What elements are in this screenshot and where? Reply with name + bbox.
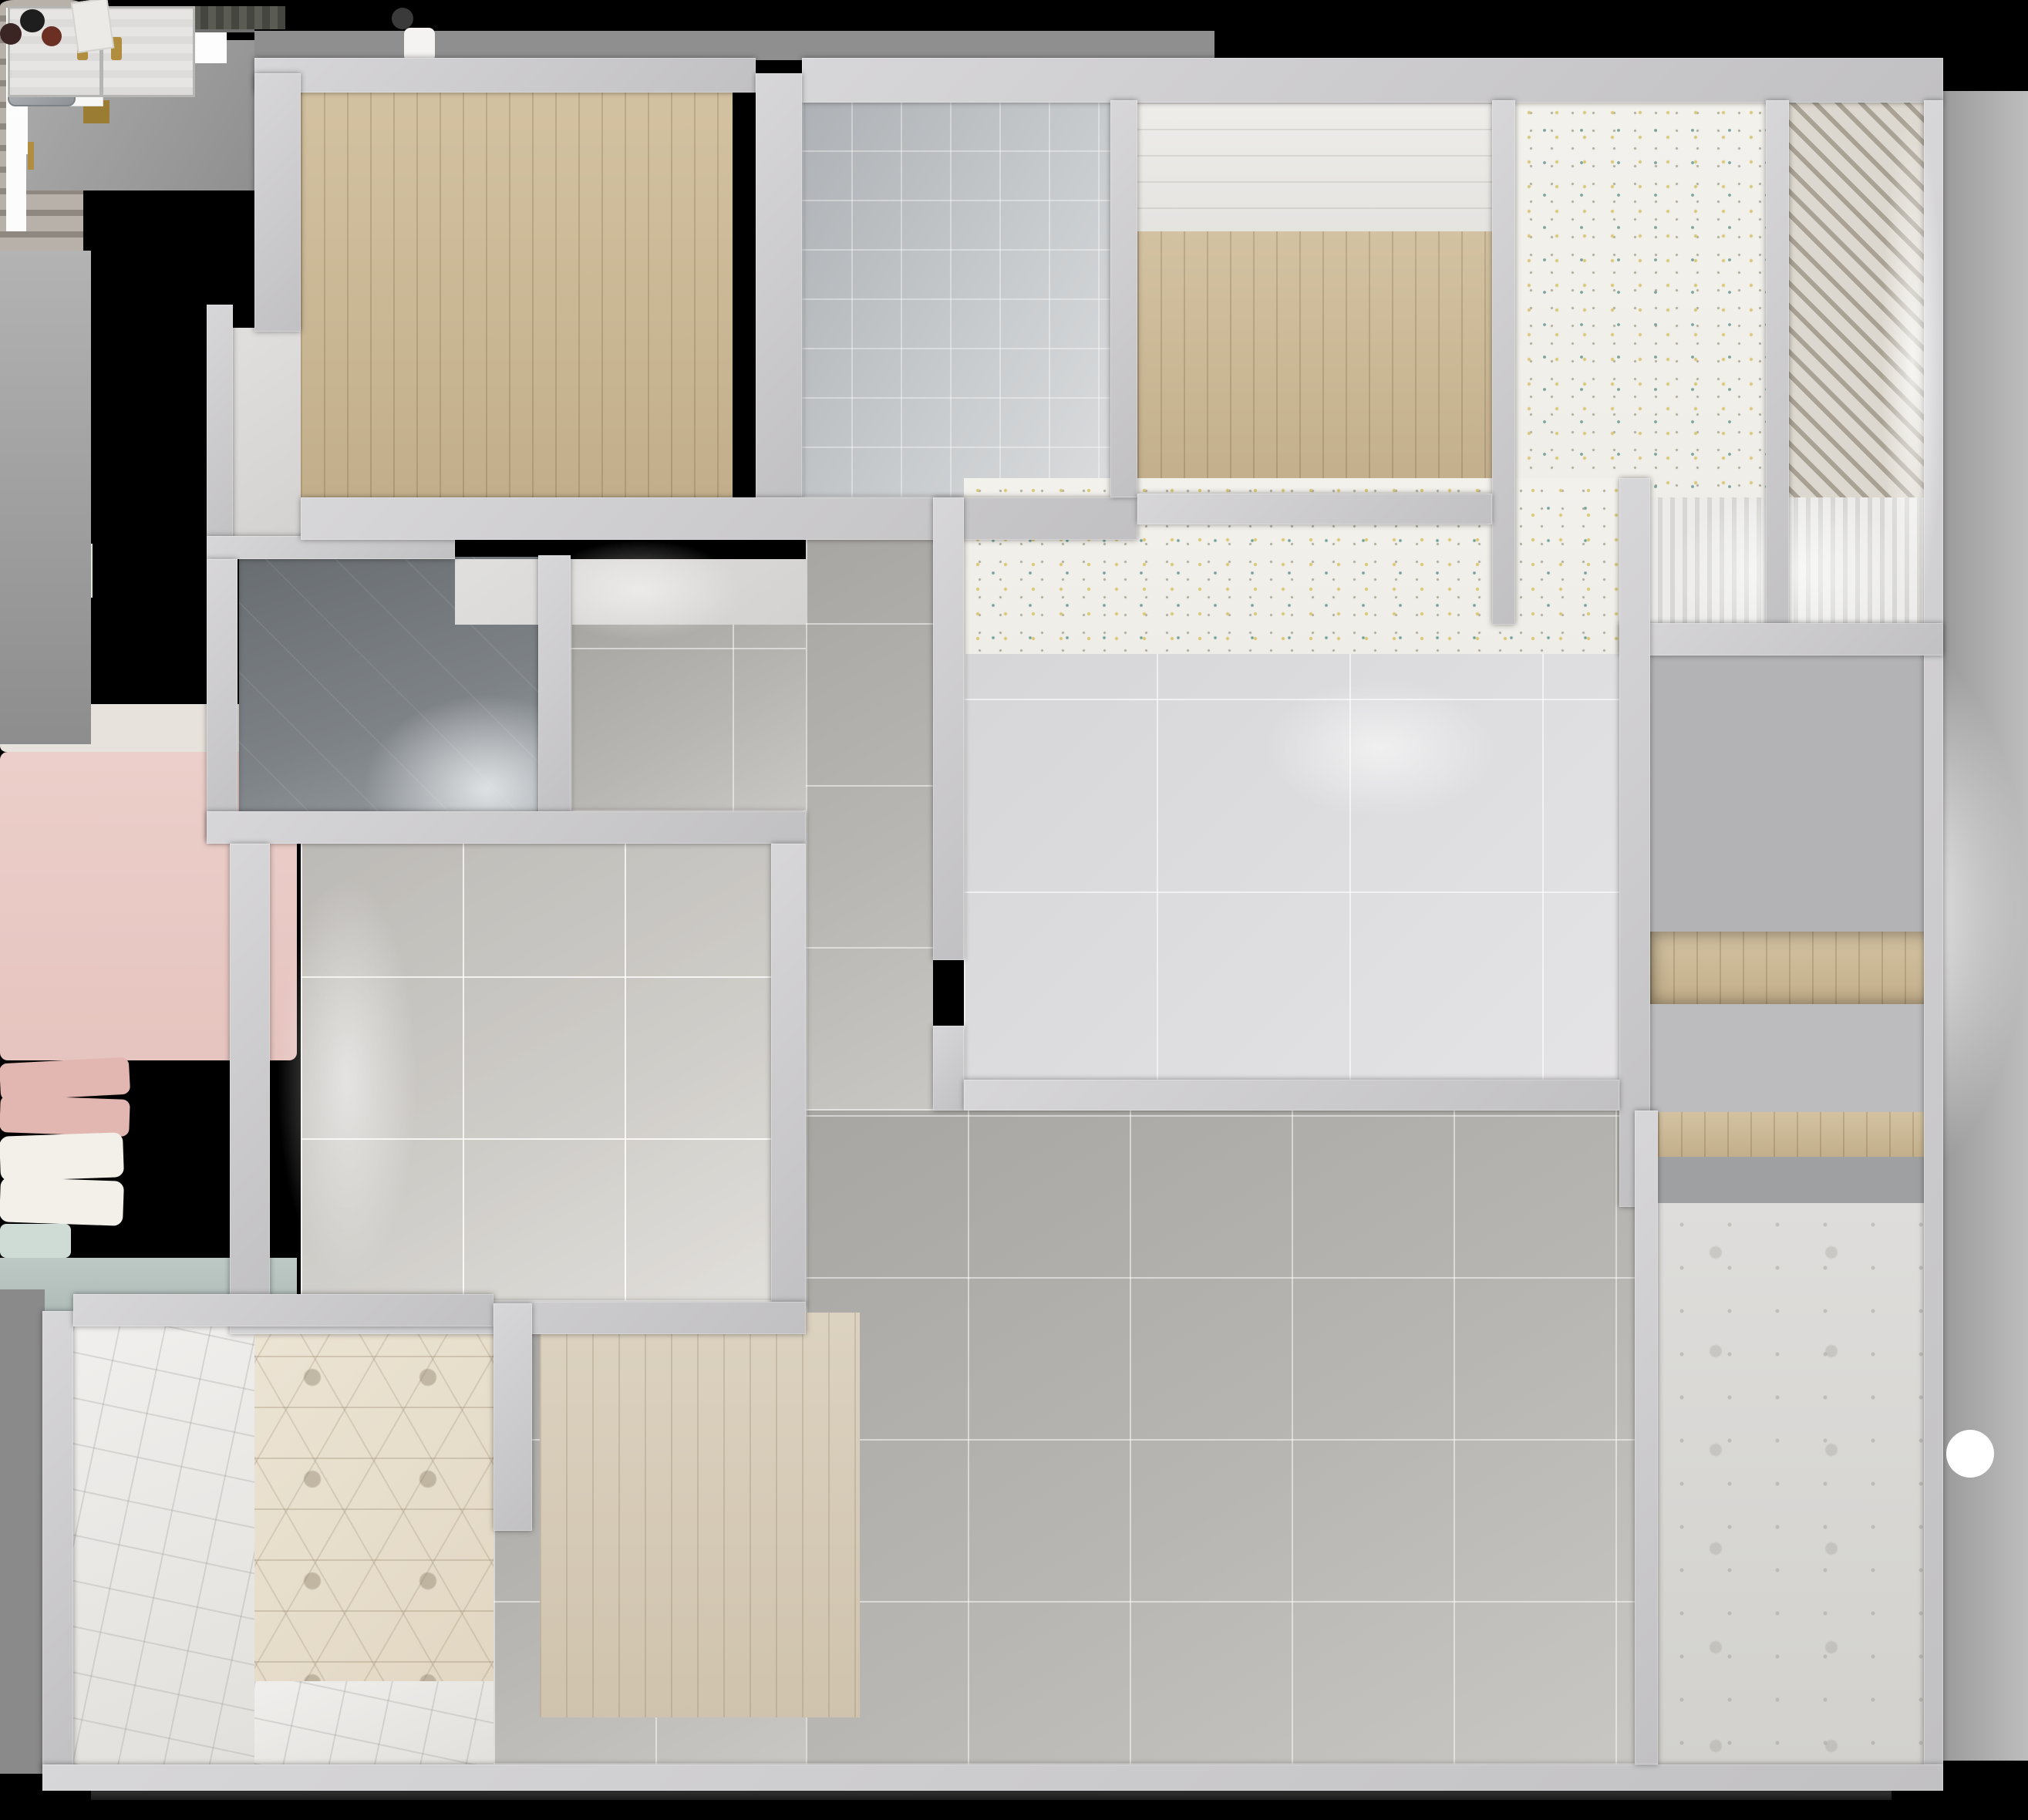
bedroom1-cushion-teal xyxy=(0,1224,71,1258)
balcony-storage-wood-shelf xyxy=(1658,1112,1924,1158)
exterior-shadow-left-upper xyxy=(0,251,91,744)
wall xyxy=(1619,623,1943,656)
wall xyxy=(1619,478,1650,1207)
balcony-storage-front xyxy=(1658,1157,1924,1203)
bedroom1-pillow-white-right xyxy=(0,1177,124,1226)
right-column-wall-b xyxy=(1650,1004,1943,1112)
wall xyxy=(207,559,237,841)
bedroom1-pillow-pink-right xyxy=(0,1095,130,1137)
wall xyxy=(1137,494,1492,524)
wall xyxy=(933,497,964,960)
bedroom1-pillow-pink-left xyxy=(0,1057,130,1101)
light-ball-right xyxy=(1946,1430,1994,1478)
wall xyxy=(494,1303,532,1531)
wall xyxy=(1492,100,1515,625)
wall xyxy=(42,1311,73,1770)
corridor-floor xyxy=(806,540,933,1111)
kitchen-white-floor xyxy=(73,1326,254,1764)
bedroom1-door-niche xyxy=(233,328,301,536)
closet-room-ceiling xyxy=(1137,100,1492,235)
study-window-glow xyxy=(278,879,416,1280)
wall xyxy=(964,1080,1619,1111)
bedroom1-pillow-white-left xyxy=(0,1132,124,1181)
floor-plan-render xyxy=(0,0,2028,1820)
wall xyxy=(207,811,806,844)
light-bloom-balcony-top xyxy=(1881,108,1943,617)
wall xyxy=(538,555,571,817)
wall xyxy=(73,1294,494,1326)
wall xyxy=(42,1764,1943,1791)
kitchen-bottom-tiles xyxy=(254,1681,494,1764)
wall xyxy=(802,58,1943,103)
corridor-left-floor xyxy=(571,625,806,811)
closet-room-floor xyxy=(1137,231,1492,497)
balcony-bottom-floor xyxy=(1658,1203,1924,1764)
wall xyxy=(230,844,270,1306)
wall xyxy=(1635,1111,1658,1764)
bedroom1-floor xyxy=(301,89,733,497)
wall xyxy=(207,305,233,559)
bedroom3-light-glow xyxy=(1265,679,1496,817)
right-column-wall-a xyxy=(1650,652,1943,933)
wall xyxy=(254,58,756,93)
wall xyxy=(756,73,802,501)
bathroom1-floor xyxy=(802,100,1110,497)
exterior-shadow-top xyxy=(254,31,1214,60)
wall xyxy=(933,1026,964,1111)
wall xyxy=(301,497,1137,540)
bathroom2-marble-patch xyxy=(362,694,540,813)
right-column-wood-niche xyxy=(1650,932,1943,1006)
exterior-shadow-left-lower xyxy=(0,1289,45,1774)
wall xyxy=(771,844,806,1306)
wall xyxy=(1766,100,1789,632)
wall xyxy=(1110,100,1137,497)
living-floor xyxy=(806,1111,1635,1764)
wall xyxy=(254,73,301,332)
dining-wood-floor xyxy=(540,1313,860,1717)
